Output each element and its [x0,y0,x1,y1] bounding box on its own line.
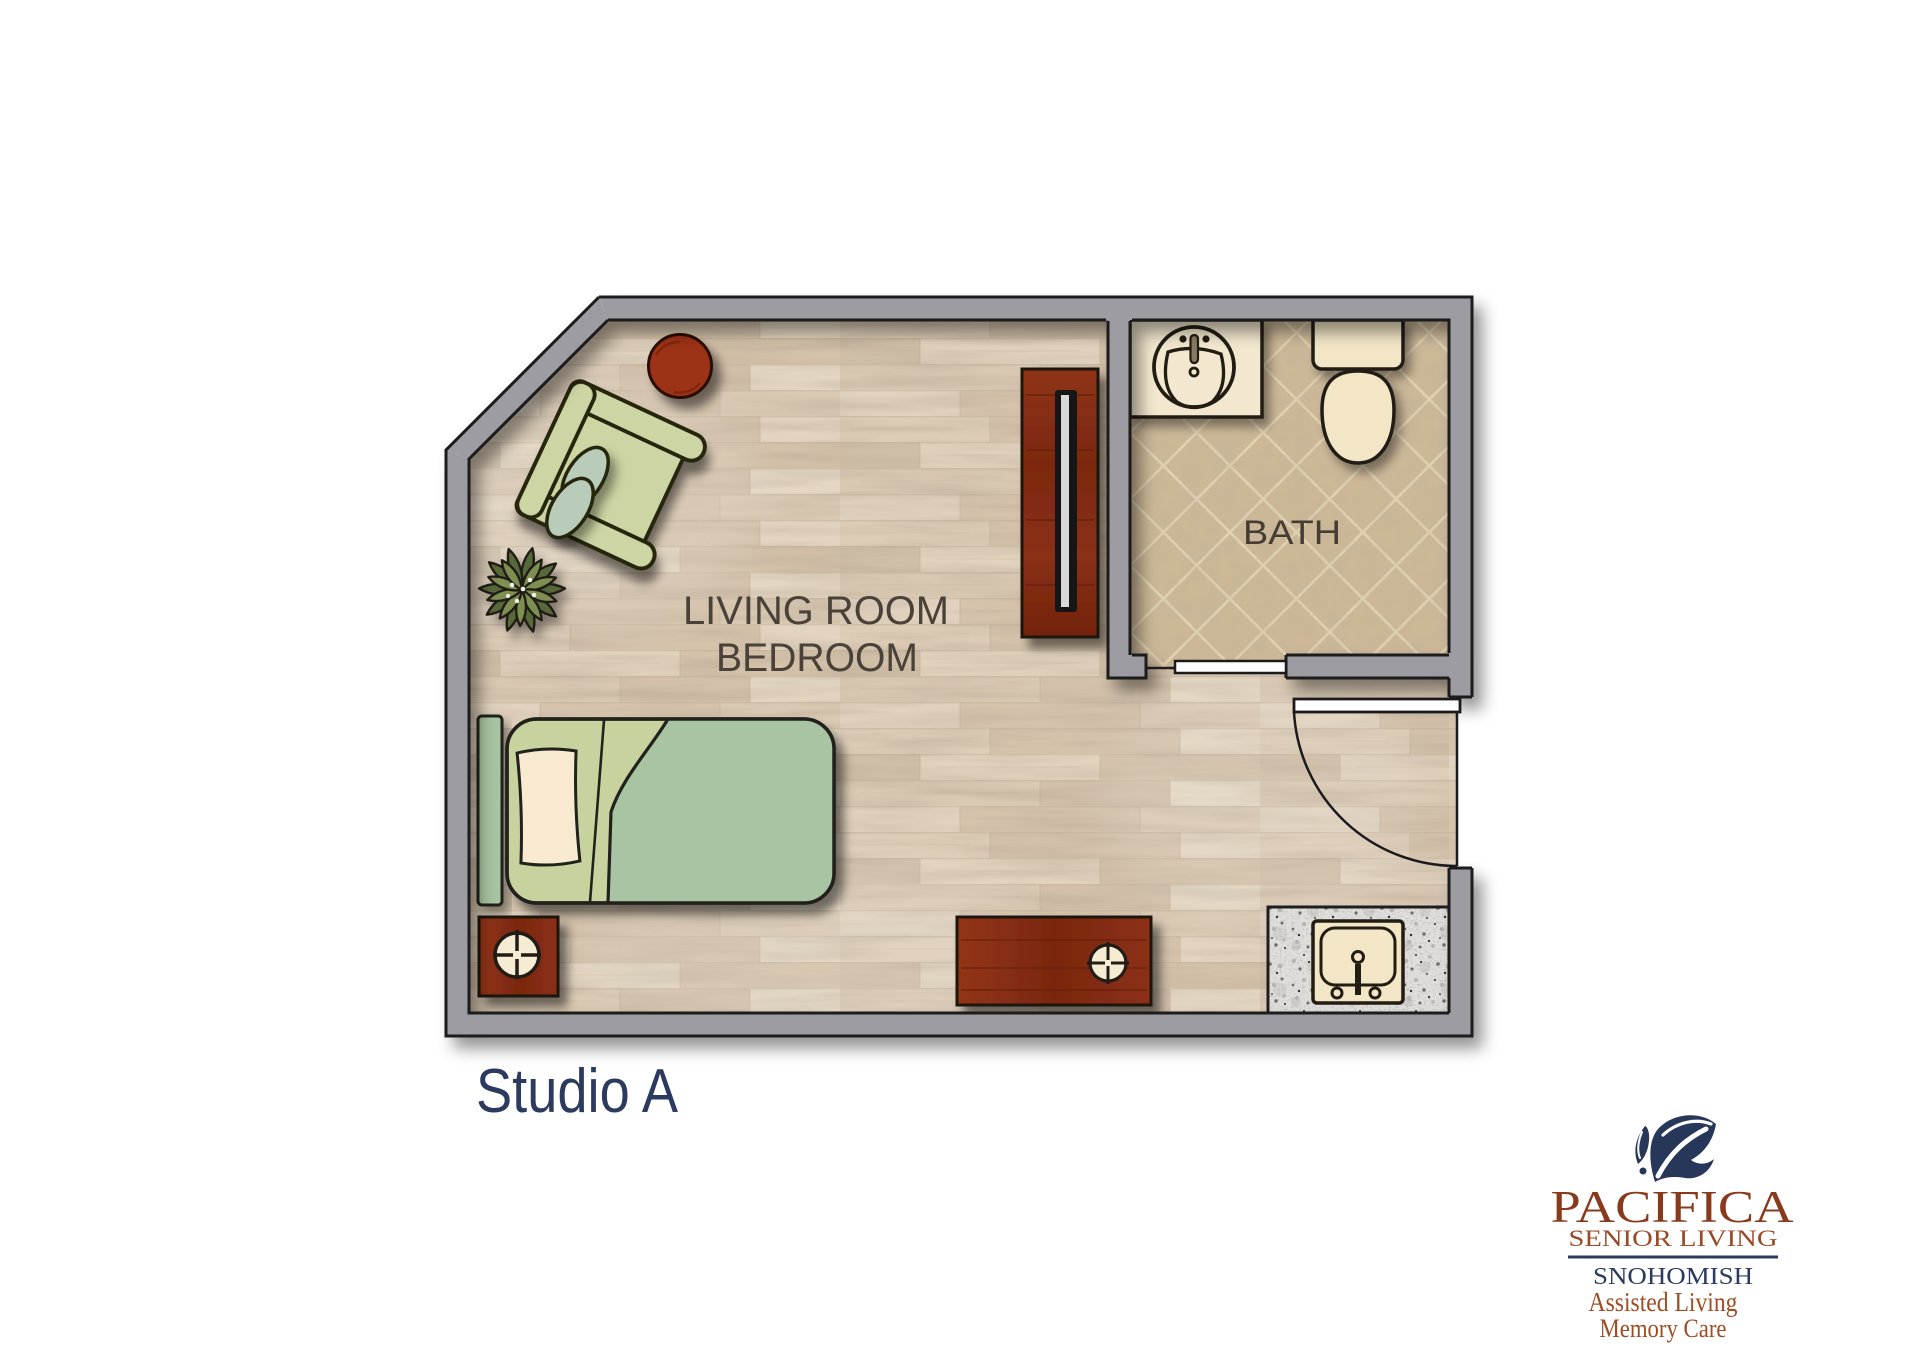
svg-text:Assisted Living: Assisted Living [1589,1287,1738,1317]
svg-text:BATH: BATH [1243,514,1341,552]
svg-text:Memory Care: Memory Care [1600,1314,1727,1343]
svg-text:SENIOR LIVING: SENIOR LIVING [1569,1226,1778,1251]
svg-text:BEDROOM: BEDROOM [716,636,918,680]
svg-text:LIVING ROOM: LIVING ROOM [683,589,949,633]
svg-text:Studio A: Studio A [476,1057,679,1126]
svg-text:PACIFICA: PACIFICA [1551,1182,1795,1232]
